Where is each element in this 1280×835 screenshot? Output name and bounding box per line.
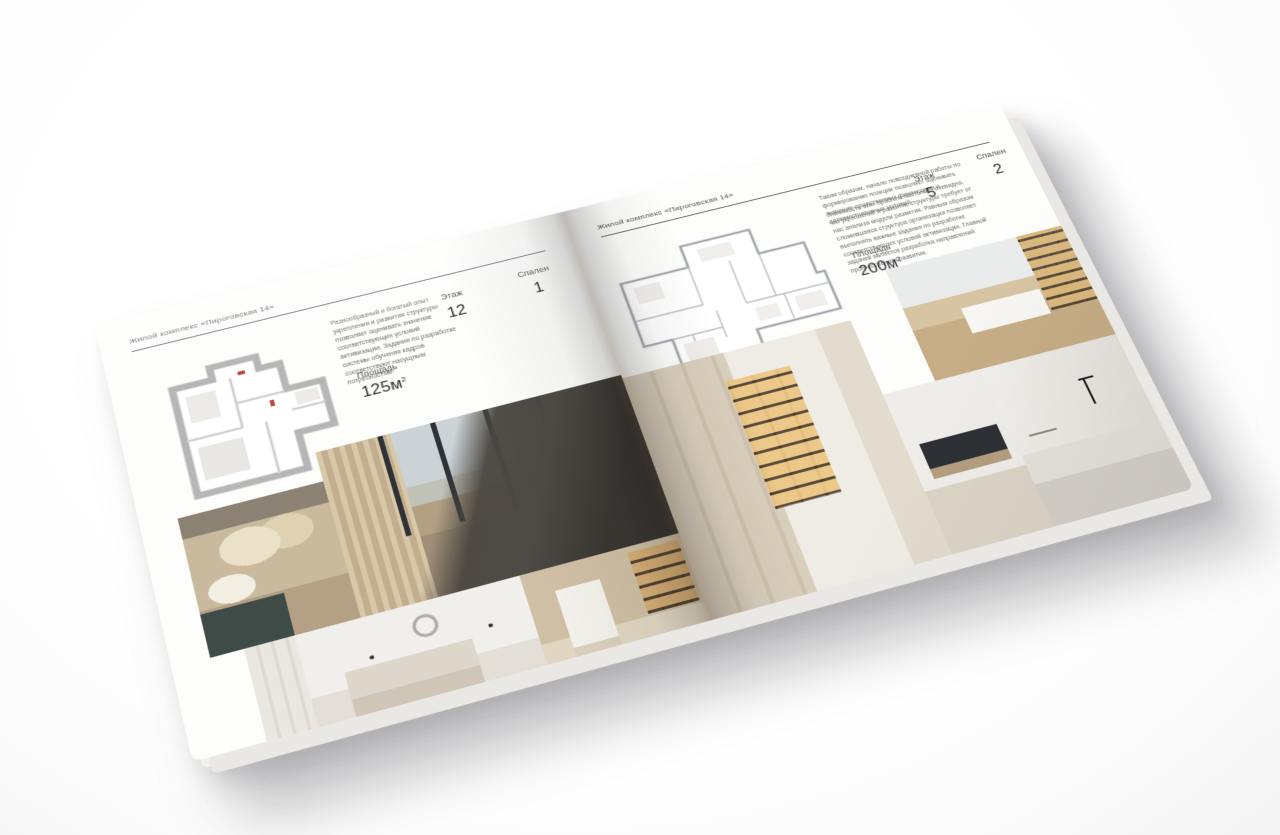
- bedrooms-stat: Спален 2: [965, 144, 1027, 183]
- floor-stat: Этаж 12: [424, 284, 486, 326]
- brochure-spread: Жилой комплекс «Пироговская 14» Разнообр…: [95, 105, 1194, 761]
- area-value: 125м2: [360, 374, 410, 401]
- scene-background: Жилой комплекс «Пироговская 14» Разнообр…: [0, 0, 1280, 835]
- bedrooms-stat: Спален 1: [504, 260, 570, 302]
- open-spread: Жилой комплекс «Пироговская 14» Разнообр…: [95, 105, 1194, 761]
- page-header: Жилой комплекс «Пироговская 14»: [129, 302, 276, 345]
